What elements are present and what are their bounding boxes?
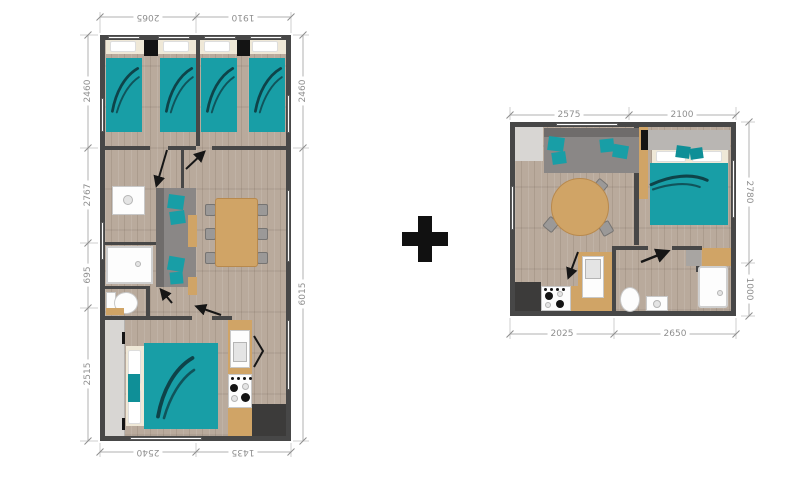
sink-basin xyxy=(233,342,247,362)
round-table xyxy=(551,178,609,236)
twin-bed xyxy=(249,58,285,132)
window xyxy=(101,222,104,260)
window xyxy=(732,160,735,218)
side-table xyxy=(188,277,197,295)
bed-cushion xyxy=(675,145,691,159)
wall xyxy=(612,246,648,250)
window xyxy=(511,186,514,230)
twin-bed xyxy=(160,58,196,132)
side-table xyxy=(188,215,197,247)
double-bed xyxy=(650,163,728,225)
wall xyxy=(105,146,150,150)
dining-chair xyxy=(257,252,268,264)
wall xyxy=(212,146,286,150)
stove-knob xyxy=(562,288,565,291)
stove-knob xyxy=(249,377,252,380)
dining-table xyxy=(215,198,258,267)
stove-knob xyxy=(544,288,547,291)
dim-label-bottom: 2540 xyxy=(134,447,163,457)
sink-basin xyxy=(653,300,661,308)
window xyxy=(108,36,140,39)
sofa-cushion xyxy=(170,271,184,284)
sofa-cushion xyxy=(169,210,186,225)
bed-cushion xyxy=(689,147,703,160)
stove-burner xyxy=(556,300,564,308)
toilet xyxy=(620,287,640,312)
window xyxy=(250,36,282,39)
pillow xyxy=(204,41,230,52)
stove-burner xyxy=(545,292,553,300)
shower xyxy=(106,246,153,284)
pillow xyxy=(252,41,278,52)
wall xyxy=(146,286,150,316)
shelf xyxy=(106,308,124,315)
dim-label-left: 2515 xyxy=(83,360,93,389)
dim-label-left: 2460 xyxy=(83,77,93,106)
shower-drain xyxy=(717,290,723,296)
window xyxy=(204,36,236,39)
sofa-cushion xyxy=(551,151,567,165)
wardrobe-unit xyxy=(144,40,158,56)
dim-label-bottom: 2025 xyxy=(548,329,577,339)
twin-bed xyxy=(106,58,142,132)
pillow xyxy=(163,41,189,52)
dim-label-top: 2575 xyxy=(555,110,584,120)
double-bed xyxy=(144,343,218,429)
sofa-back xyxy=(156,188,164,287)
dim-label-top: 2100 xyxy=(668,110,697,120)
stove-burner xyxy=(241,393,250,402)
dim-label-right: 6015 xyxy=(298,280,308,309)
kitchen-counter-dark xyxy=(252,404,286,436)
floor-plans-scene: 2065 1910 2460 2767 695 2515 2460 6015 2… xyxy=(0,0,796,480)
sofa-back xyxy=(544,128,639,137)
window xyxy=(287,190,290,262)
dim-label-left: 695 xyxy=(83,263,93,286)
dim-label-bottom: 2650 xyxy=(661,329,690,339)
pillow xyxy=(110,41,136,52)
wall xyxy=(196,40,200,146)
window xyxy=(287,320,290,390)
plus-icon-horizontal-bar xyxy=(402,232,448,246)
dim-label-bottom: 1435 xyxy=(229,447,258,457)
stove-burner xyxy=(557,291,563,297)
wardrobe-handle xyxy=(122,332,125,344)
dining-chair xyxy=(257,228,268,240)
dining-chair xyxy=(257,204,268,216)
wall xyxy=(105,286,149,289)
sofa-cushion xyxy=(167,194,185,210)
window xyxy=(101,98,104,132)
floor-mat xyxy=(686,250,701,266)
bed-cushion xyxy=(128,374,140,402)
dim-label-right: 2780 xyxy=(744,178,754,207)
shelf-desk xyxy=(515,127,543,161)
stove-knob xyxy=(237,377,240,380)
stove-burner xyxy=(545,302,551,308)
sink-basin xyxy=(585,259,601,279)
stove-burner xyxy=(231,395,238,402)
shower-drain xyxy=(135,261,141,267)
sofa-cushion xyxy=(167,256,185,273)
stove-burner xyxy=(242,383,249,390)
stove-knob xyxy=(231,377,234,380)
wardrobe-handle xyxy=(122,418,125,430)
wall xyxy=(612,248,616,311)
dim-label-right: 1000 xyxy=(744,275,754,304)
window xyxy=(287,95,290,133)
sofa-cushion xyxy=(612,144,629,159)
sink-basin xyxy=(123,195,133,205)
sofa-cushion xyxy=(547,136,565,152)
window xyxy=(556,123,618,126)
dim-label-top: 1910 xyxy=(229,12,258,22)
dim-label-left: 2767 xyxy=(83,181,93,210)
shower xyxy=(698,266,728,308)
stove-burner xyxy=(230,384,238,392)
bathroom-counter xyxy=(702,248,731,266)
twin-bed xyxy=(201,58,237,132)
window xyxy=(130,437,202,440)
kitchen-counter-dark xyxy=(515,282,541,311)
wardrobe-unit xyxy=(237,40,250,56)
stove-knob xyxy=(243,377,246,380)
stove-knob xyxy=(550,288,553,291)
window xyxy=(158,36,190,39)
dim-label-right: 2460 xyxy=(298,77,308,106)
dim-label-top: 2065 xyxy=(134,12,163,22)
